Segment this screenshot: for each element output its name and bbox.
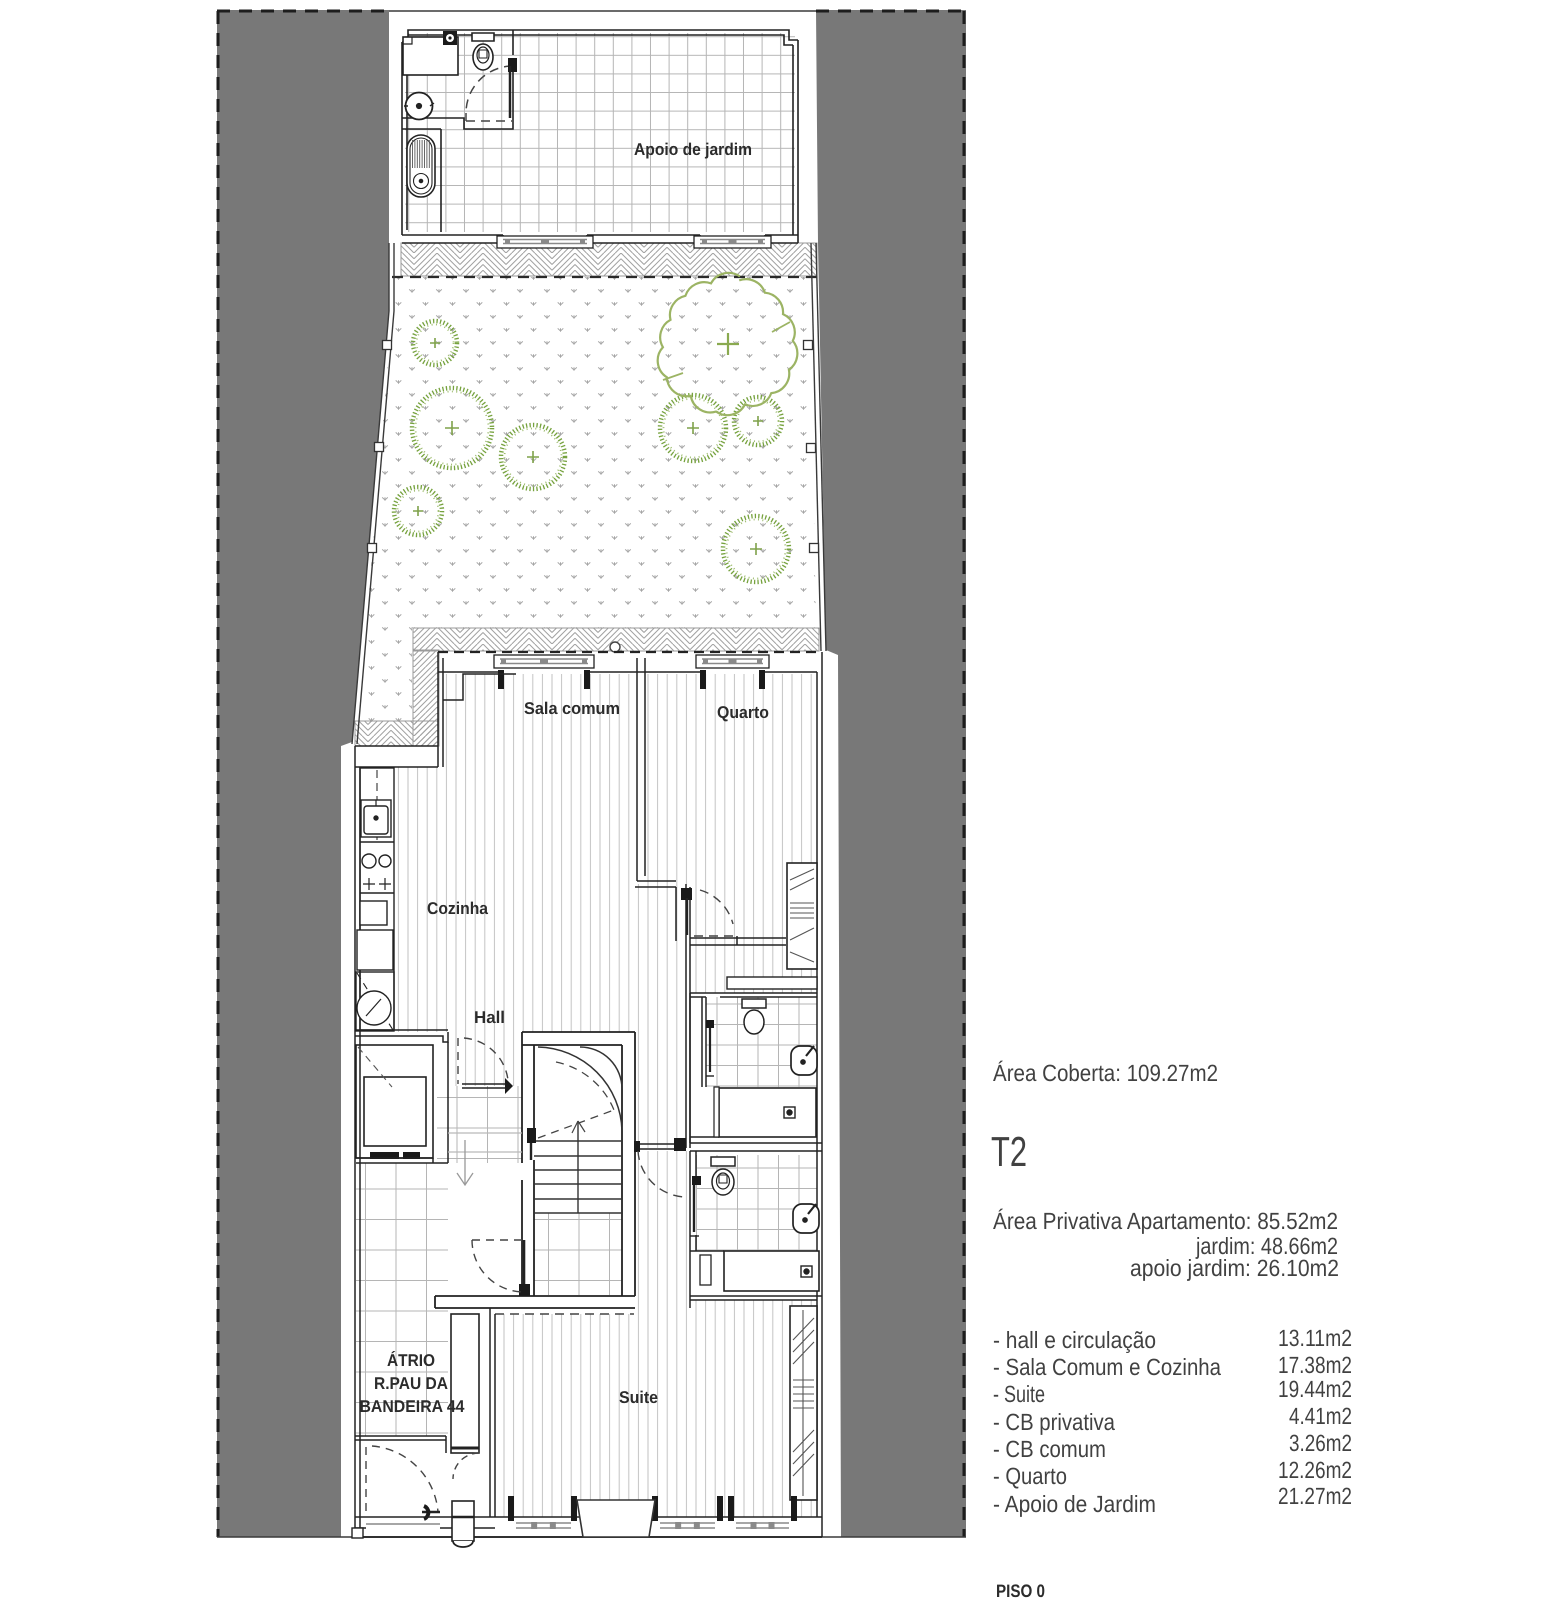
- svg-text:- Suite: - Suite: [993, 1381, 1045, 1407]
- svg-text:- CB privativa: - CB privativa: [993, 1409, 1116, 1435]
- svg-text:- hall e circulação: - hall e circulação: [993, 1327, 1156, 1353]
- svg-text:13.11m2: 13.11m2: [1278, 1325, 1352, 1351]
- svg-text:17.38m2: 17.38m2: [1278, 1352, 1352, 1378]
- svg-text:4.41m2: 4.41m2: [1289, 1403, 1352, 1429]
- svg-text:- Sala Comum e Cozinha: - Sala Comum e Cozinha: [993, 1354, 1222, 1380]
- svg-text:- CB comum: - CB comum: [993, 1436, 1106, 1462]
- svg-text:T2: T2: [991, 1128, 1027, 1175]
- svg-text:Apoio de jardim: Apoio de jardim: [634, 140, 752, 159]
- svg-text:- Quarto: - Quarto: [993, 1463, 1067, 1489]
- svg-text:ÁTRIO: ÁTRIO: [387, 1350, 435, 1370]
- svg-text:apoio jardim: 26.10m2: apoio jardim: 26.10m2: [1130, 1255, 1339, 1281]
- svg-text:R.PAU DA: R.PAU DA: [374, 1374, 448, 1393]
- svg-text:21.27m2: 21.27m2: [1278, 1483, 1352, 1509]
- svg-text:Sala comum: Sala comum: [524, 699, 620, 718]
- svg-text:PISO 0: PISO 0: [996, 1581, 1045, 1601]
- svg-text:3.26m2: 3.26m2: [1289, 1430, 1352, 1456]
- svg-text:BANDEIRA 44: BANDEIRA 44: [360, 1397, 465, 1416]
- svg-text:Quarto: Quarto: [717, 703, 769, 722]
- svg-text:Área Coberta: 109.27m2: Área Coberta: 109.27m2: [993, 1060, 1218, 1086]
- svg-text:Hall: Hall: [474, 1008, 505, 1027]
- svg-text:Área Privativa Apartamento: 85: Área Privativa Apartamento: 85.52m2: [993, 1208, 1338, 1234]
- svg-text:12.26m2: 12.26m2: [1278, 1457, 1352, 1483]
- svg-text:Suite: Suite: [619, 1388, 658, 1407]
- svg-text:- Apoio de Jardim: - Apoio de Jardim: [993, 1491, 1156, 1517]
- svg-text:19.44m2: 19.44m2: [1278, 1376, 1352, 1402]
- svg-text:Cozinha: Cozinha: [427, 899, 489, 918]
